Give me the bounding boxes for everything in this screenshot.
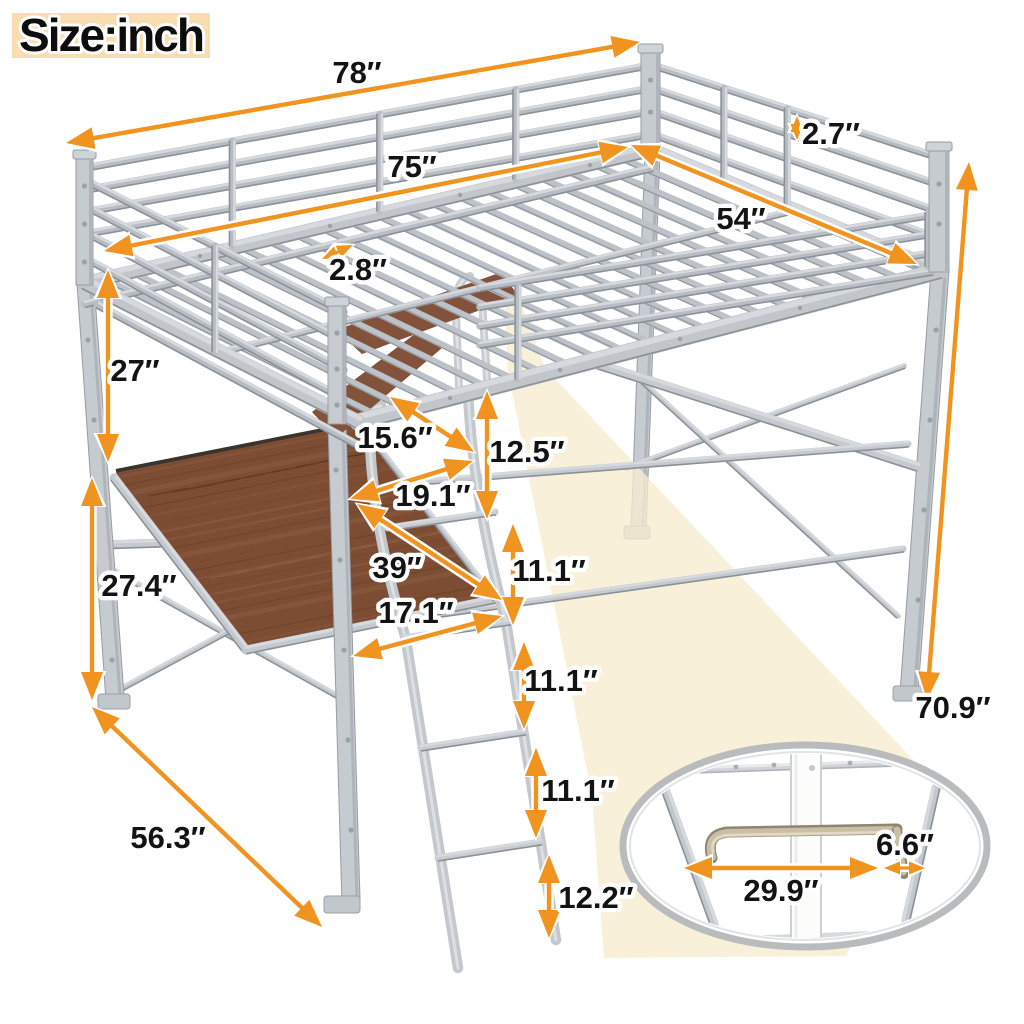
svg-text:2.7″: 2.7″ [802, 116, 860, 151]
svg-text:12.5″: 12.5″ [489, 434, 564, 469]
svg-text:29.9″: 29.9″ [743, 873, 818, 908]
svg-text:15.6″: 15.6″ [357, 420, 432, 455]
svg-text:19.1″: 19.1″ [395, 478, 470, 513]
svg-text:2.8″: 2.8″ [329, 252, 387, 287]
svg-text:12.2″: 12.2″ [558, 880, 633, 915]
svg-text:11.1″: 11.1″ [541, 773, 615, 808]
svg-text:17.1″: 17.1″ [378, 595, 453, 630]
svg-text:54″: 54″ [716, 201, 765, 236]
svg-text:27″: 27″ [110, 353, 159, 388]
svg-text:75″: 75″ [387, 149, 436, 184]
svg-text:11.1″: 11.1″ [512, 553, 586, 588]
svg-text:6.6″: 6.6″ [876, 827, 934, 862]
svg-text:78″: 78″ [332, 55, 381, 90]
svg-text:27.4″: 27.4″ [101, 568, 176, 603]
svg-text:70.9″: 70.9″ [915, 690, 990, 725]
svg-text:39″: 39″ [372, 550, 421, 585]
svg-text:Size:inch: Size:inch [19, 9, 203, 61]
svg-text:11.1″: 11.1″ [524, 663, 598, 698]
svg-text:56.3″: 56.3″ [130, 820, 205, 855]
